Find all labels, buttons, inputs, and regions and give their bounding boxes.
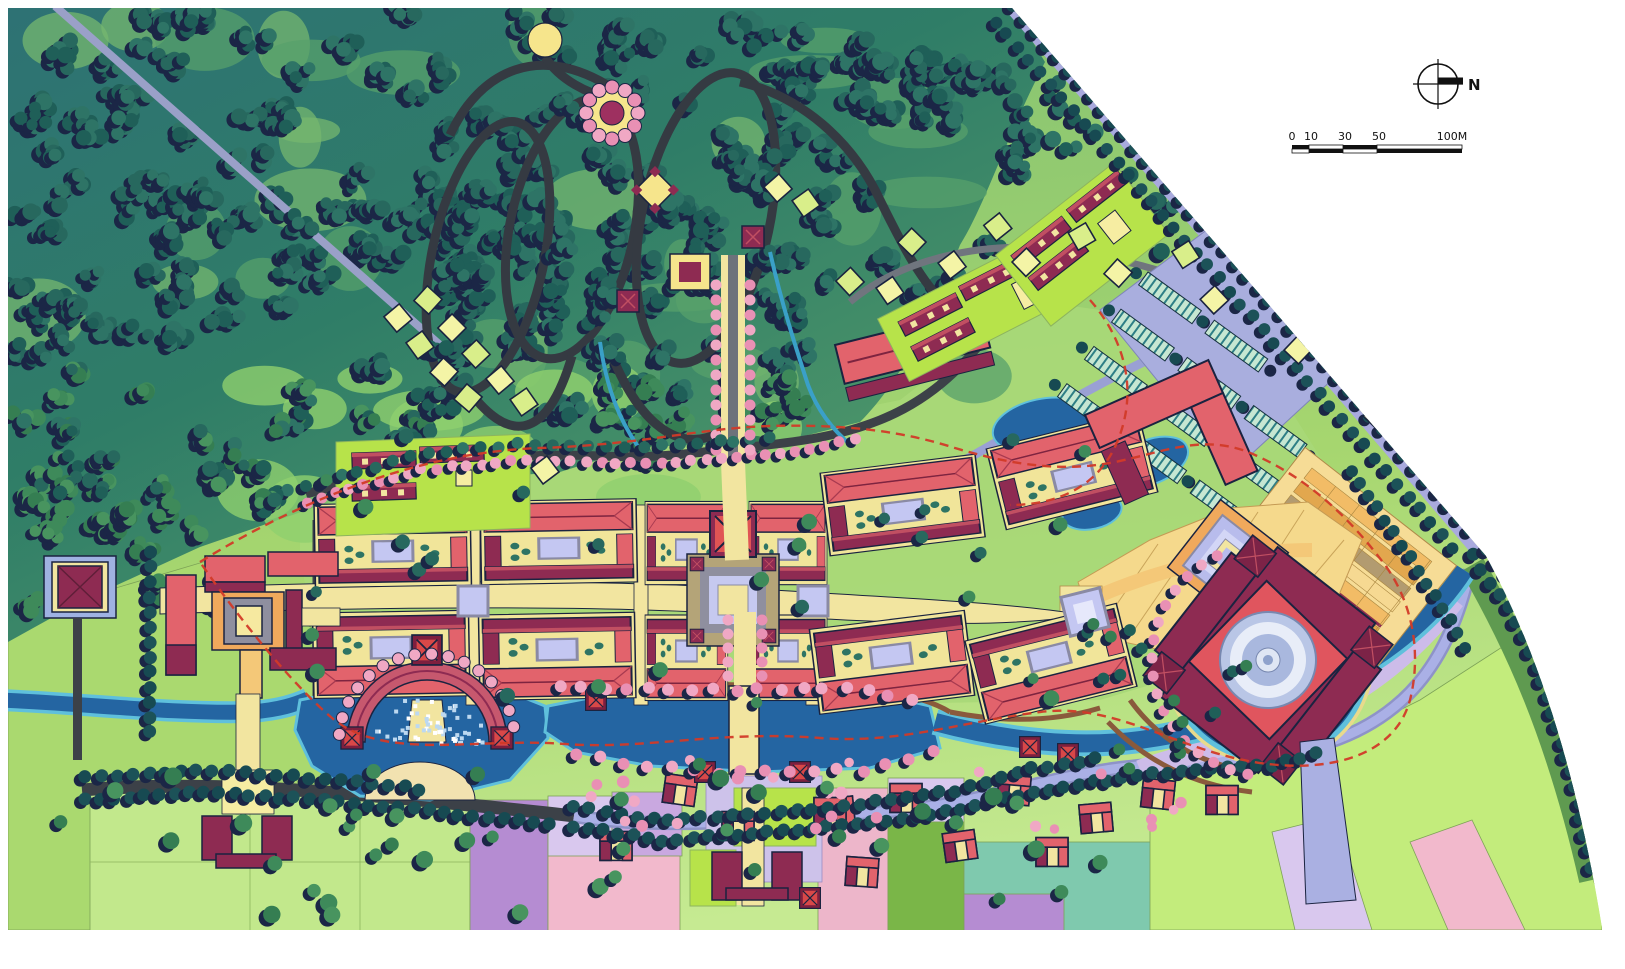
- scale-tick-10: 10: [1304, 130, 1318, 143]
- site-plan-page: N 0 10 30 50 100M: [0, 0, 1625, 969]
- hilltop-pavilion: [528, 23, 562, 57]
- north-arrow-bar: [1438, 78, 1463, 84]
- scale-tick-50: 50: [1372, 130, 1386, 143]
- scale-tick-100: 100M: [1437, 130, 1468, 143]
- scale-tick-0: 0: [1289, 130, 1296, 143]
- scale-tick-30: 30: [1338, 130, 1352, 143]
- north-arrow: N: [1413, 59, 1481, 109]
- scale-bar-segments: [1292, 145, 1462, 153]
- approach-station: [670, 254, 710, 290]
- scale-bar: 0 10 30 50 100M: [1289, 130, 1468, 153]
- master-plan-map: N 0 10 30 50 100M: [0, 0, 1625, 969]
- north-label: N: [1468, 76, 1481, 94]
